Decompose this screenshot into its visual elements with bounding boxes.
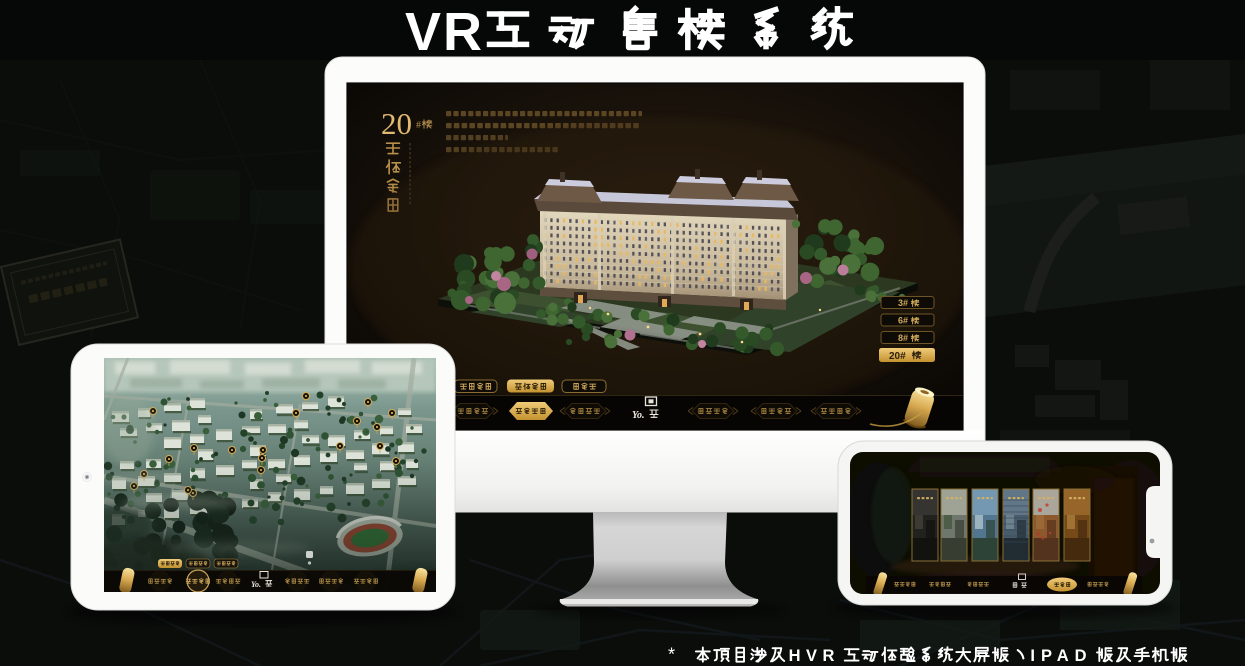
svg-text:3#: 3# xyxy=(898,298,908,308)
svg-text:Yo.: Yo. xyxy=(632,410,645,421)
svg-text:Yo.: Yo. xyxy=(251,580,261,589)
svg-text:*: * xyxy=(668,645,675,665)
svg-text:20: 20 xyxy=(381,106,412,141)
svg-text:IPAD: IPAD xyxy=(1030,647,1092,665)
svg-text:VR: VR xyxy=(405,2,484,62)
svg-text:20#: 20# xyxy=(889,351,906,362)
svg-text:HVR: HVR xyxy=(789,647,840,665)
svg-text:#: # xyxy=(416,120,421,131)
svg-text:6#: 6# xyxy=(898,316,908,326)
svg-text:8#: 8# xyxy=(898,333,908,343)
